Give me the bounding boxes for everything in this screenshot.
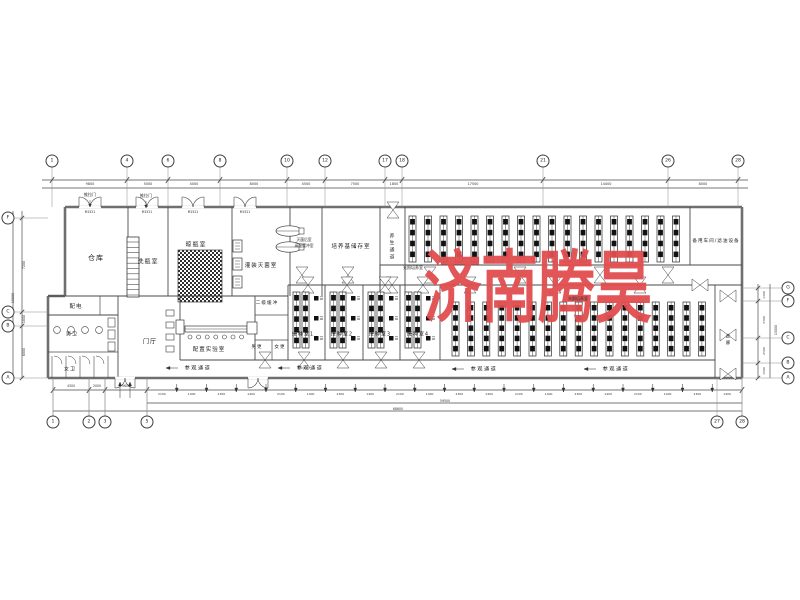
floor-plan-svg	[0, 0, 800, 600]
drawing-sheet: 济南腾昊 14681012171821262898005000400080004…	[0, 0, 800, 600]
